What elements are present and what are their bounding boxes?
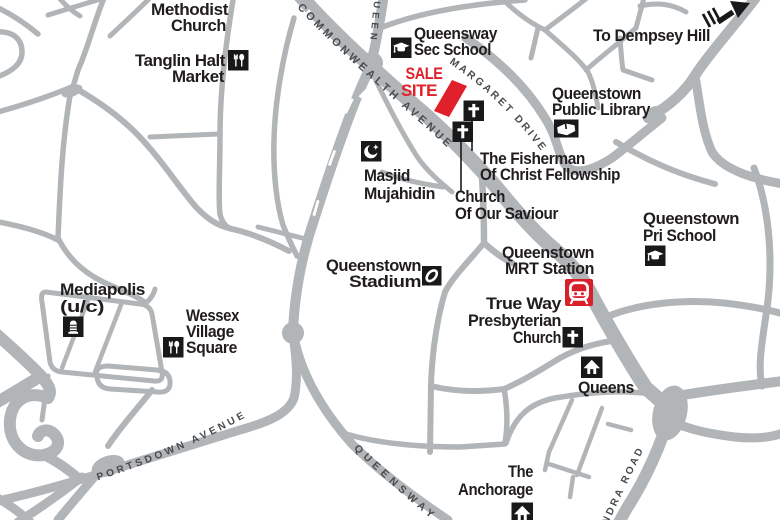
- svg-text:Square: Square: [186, 339, 237, 357]
- svg-text:Queens: Queens: [578, 379, 634, 397]
- svg-text:Mujahidin: Mujahidin: [364, 185, 435, 203]
- svg-text:Anchorage: Anchorage: [458, 481, 533, 499]
- svg-text:Mediapolis: Mediapolis: [60, 281, 145, 299]
- svg-text:(u/c): (u/c): [60, 298, 104, 316]
- svg-text:Church: Church: [455, 188, 505, 206]
- svg-text:Masjid: Masjid: [364, 167, 410, 185]
- svg-text:Of Christ Fellowship: Of Christ Fellowship: [480, 166, 620, 184]
- svg-text:Sec School: Sec School: [414, 41, 491, 59]
- svg-text:MRT Station: MRT Station: [505, 260, 594, 278]
- svg-text:Church: Church: [171, 17, 226, 35]
- svg-text:True Way: True Way: [486, 295, 561, 313]
- svg-text:To Dempsey Hill: To Dempsey Hill: [593, 27, 710, 45]
- svg-text:Public Library: Public Library: [552, 101, 650, 119]
- svg-text:Pri School: Pri School: [643, 227, 716, 245]
- svg-text:SALE: SALE: [406, 65, 444, 83]
- svg-text:SITE: SITE: [401, 82, 438, 100]
- svg-text:Of Our Saviour: Of Our Saviour: [455, 205, 559, 223]
- svg-text:Stadium: Stadium: [349, 273, 421, 291]
- svg-text:Queenstown: Queenstown: [643, 210, 739, 228]
- svg-text:Church: Church: [513, 329, 561, 347]
- svg-text:Market: Market: [172, 68, 225, 86]
- svg-text:The: The: [508, 463, 533, 481]
- svg-text:Presbyterian: Presbyterian: [468, 312, 561, 330]
